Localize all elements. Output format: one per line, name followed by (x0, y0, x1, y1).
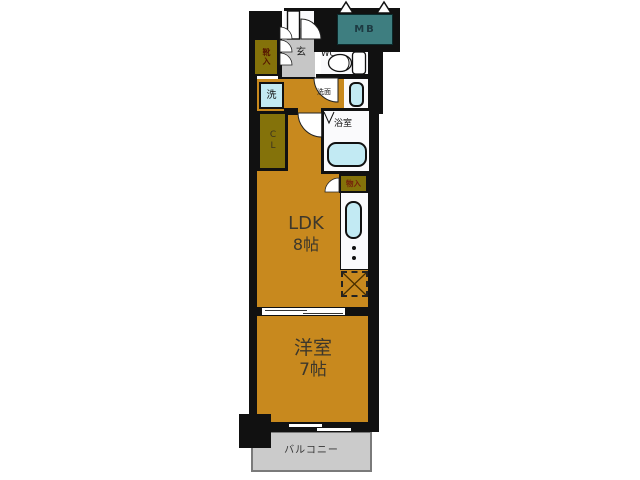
balcony-window-panel (289, 424, 322, 427)
ldk-label: LDK 8帖 (266, 215, 346, 253)
wall-genkan-step (282, 77, 315, 79)
closet-label: CL (268, 130, 277, 152)
meter-box-label: MB (354, 25, 376, 35)
washbasin-sink (349, 82, 364, 107)
laundry-label: 洗 (267, 91, 277, 101)
laundry-space: 洗 (259, 82, 284, 109)
kitchen-sink (345, 201, 362, 239)
storage-label: 物入 (346, 180, 361, 188)
western-room-label: 洋室 7帖 (263, 339, 363, 379)
shoe-cabinet-label: 靴入 (262, 48, 270, 66)
stove-knob (352, 246, 356, 250)
floor-plan: MB 靴入 CL 洗 物入 (0, 0, 640, 480)
sliding-door (262, 308, 345, 315)
storage-box: 物入 (339, 174, 368, 193)
wall-entry-lintel (284, 8, 318, 11)
sliding-door-panel (265, 310, 307, 312)
entrance-label: 玄 (296, 48, 306, 58)
ldk-size: 8帖 (266, 237, 346, 253)
bathtub (327, 142, 367, 167)
entrance-vestibule-floor (284, 11, 315, 28)
closet: CL (257, 111, 288, 171)
toilet-label: WC (321, 50, 335, 59)
refrigerator-space (341, 271, 368, 297)
sliding-door-panel (303, 313, 343, 315)
wall-below-toilet (316, 74, 370, 79)
western-room-size: 7帖 (263, 362, 363, 379)
western-room-name: 洋室 (263, 339, 363, 358)
shoe-cabinet: 靴入 (253, 38, 279, 76)
stove-knob (352, 256, 356, 260)
bathroom-label: 浴室 (334, 120, 352, 129)
meter-box: MB (337, 14, 393, 45)
balcony-window-panel (317, 428, 351, 431)
pillar (239, 414, 271, 448)
ldk-name: LDK (266, 215, 346, 233)
balcony-label: バルコニー (251, 446, 372, 456)
washroom-label: 洗面 (317, 89, 331, 96)
wall-right-upper (368, 44, 383, 114)
